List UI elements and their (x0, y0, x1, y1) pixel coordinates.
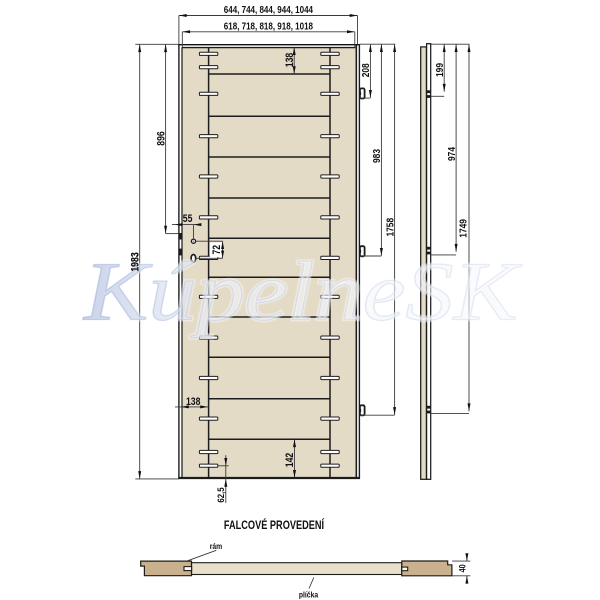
svg-text:1749: 1749 (458, 219, 469, 238)
svg-text:1983: 1983 (130, 252, 142, 272)
svg-text:55: 55 (183, 213, 193, 225)
svg-text:974: 974 (446, 146, 457, 161)
svg-text:138: 138 (284, 52, 296, 67)
svg-text:62,5: 62,5 (215, 487, 226, 502)
svg-text:142: 142 (284, 453, 296, 468)
svg-text:896: 896 (156, 131, 168, 146)
svg-text:plíčka: plíčka (299, 590, 319, 600)
svg-text:983: 983 (371, 149, 382, 163)
svg-text:KúpelneSK: KúpelneSK (83, 246, 523, 339)
svg-text:644, 744, 844, 944, 1044: 644, 744, 844, 944, 1044 (224, 4, 314, 15)
svg-text:rám: rám (210, 541, 223, 551)
svg-text:40: 40 (458, 564, 468, 572)
svg-text:618, 718, 818, 918, 1018: 618, 718, 818, 918, 1018 (224, 20, 313, 31)
svg-text:208: 208 (360, 63, 371, 77)
svg-text:FALCOVÉ PROVEDENÍ: FALCOVÉ PROVEDENÍ (224, 518, 325, 532)
svg-text:1758: 1758 (385, 218, 396, 237)
svg-text:199: 199 (434, 63, 445, 77)
